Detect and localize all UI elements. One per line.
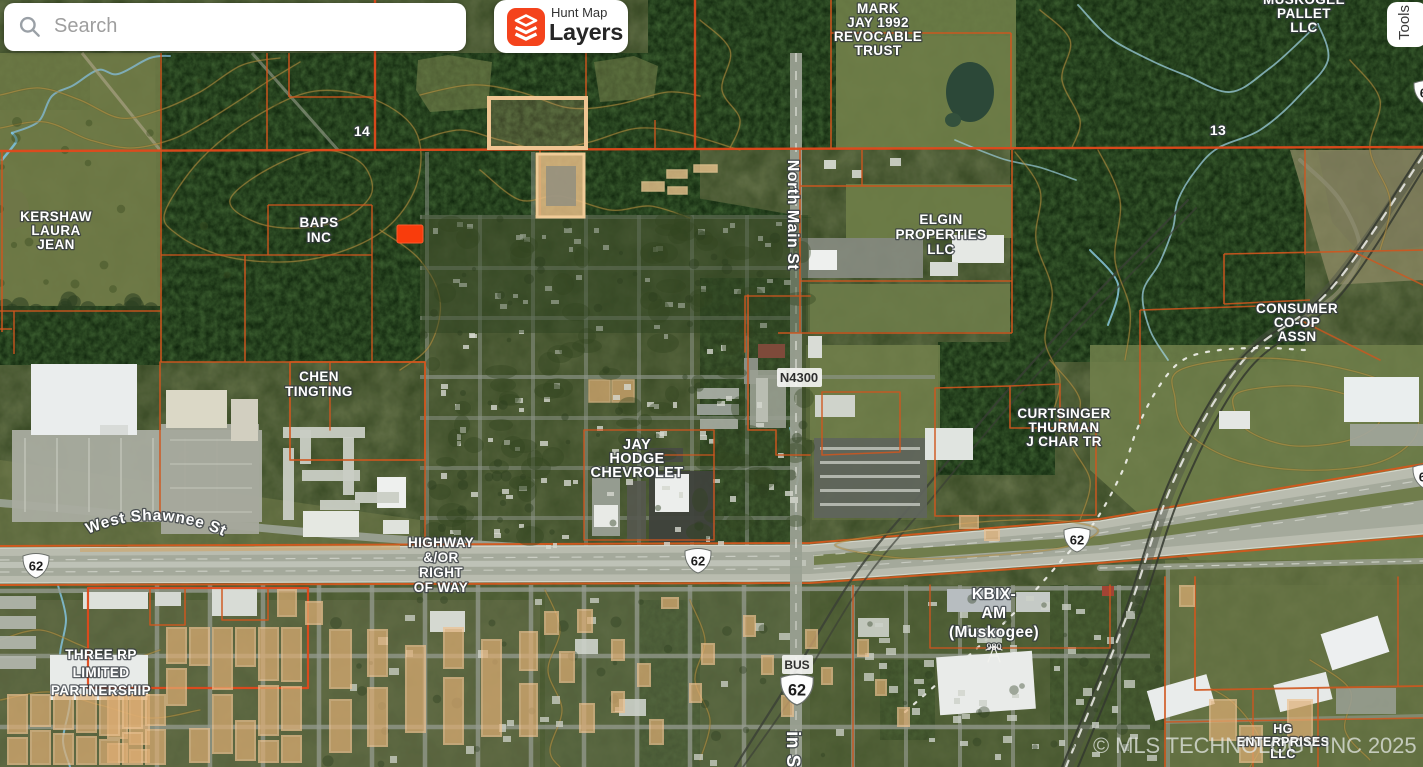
svg-text:62: 62 [29, 559, 43, 574]
svg-text:62: 62 [788, 682, 806, 700]
svg-text:© MLS TECHNOLOGY INC 2025: © MLS TECHNOLOGY INC 2025 [1093, 733, 1416, 758]
svg-text:CURTSINGERTHURMANJ CHAR TR: CURTSINGERTHURMANJ CHAR TR [1017, 406, 1110, 449]
svg-text:62: 62 [691, 554, 705, 569]
svg-text:N4300: N4300 [780, 370, 818, 385]
svg-text:62: 62 [1419, 470, 1423, 485]
svg-text:13: 13 [1210, 122, 1226, 138]
svg-text:14: 14 [354, 123, 370, 139]
svg-text:BUS: BUS [784, 658, 809, 672]
svg-text:in St: in St [782, 731, 803, 767]
svg-text:North Main St: North Main St [784, 160, 801, 271]
svg-text:62: 62 [1070, 533, 1084, 548]
